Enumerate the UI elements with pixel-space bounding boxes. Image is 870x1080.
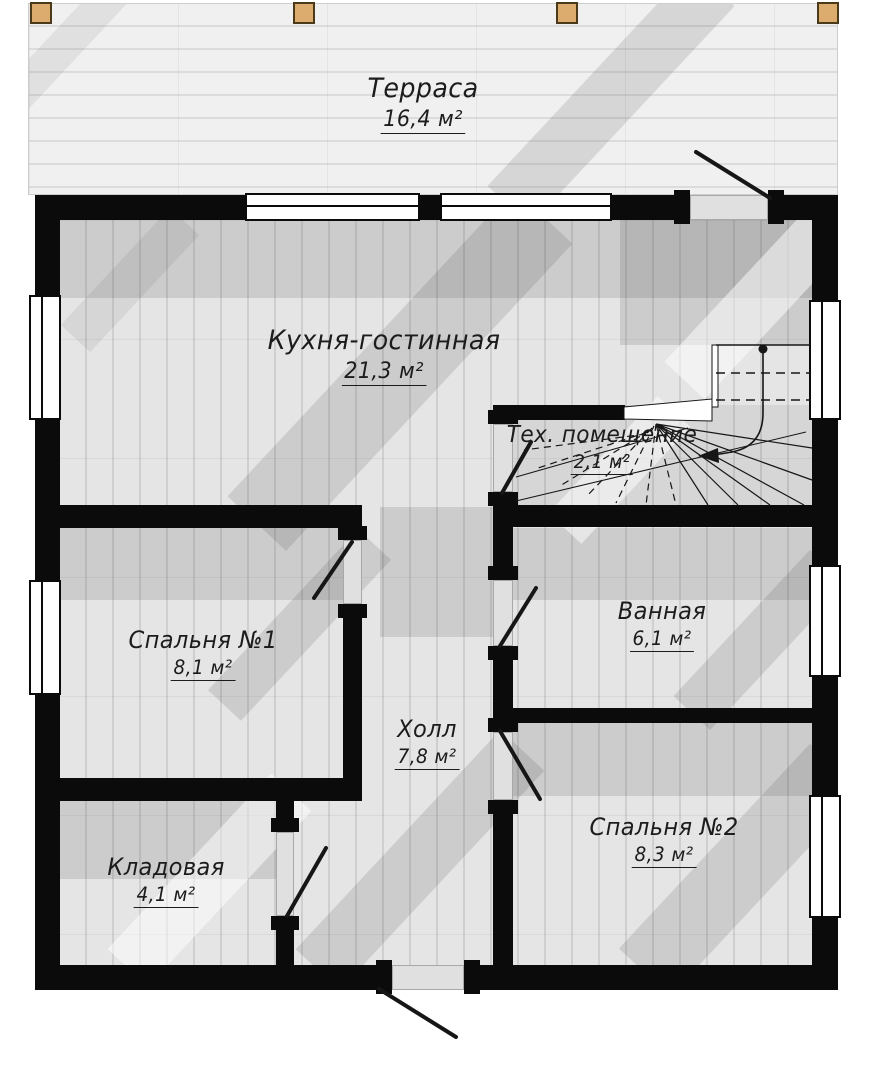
room-area: 8,1 м² [128,657,277,679]
room-label-kitchen: Кухня-гостинная 21,3 м² [268,326,501,384]
terrace-post [293,2,315,24]
room-name: Терраса [367,74,478,104]
room-label-bedroom2: Спальня №2 8,3 м² [589,814,738,866]
room-label-bedroom1: Спальня №1 8,1 м² [128,627,277,679]
shadow-band [513,528,812,600]
terrace-post [30,2,52,24]
door-jamb [488,492,518,506]
shadow-band [487,3,734,195]
door-jamb [376,960,392,994]
window-top-left [245,193,420,221]
window-bathroom [809,565,841,677]
room-label-bathroom: Ванная 6,1 м² [618,598,706,650]
door-jamb [488,566,518,580]
room-label-hall: Холл 7,8 м² [395,716,460,768]
door-opening-exit [392,965,464,990]
room-name: Кладовая [107,854,224,881]
door-opening-bedroom1 [343,540,362,604]
door-jamb [674,190,690,224]
room-label-terrace: Терраса 16,4 м² [367,74,478,132]
door-jamb [271,916,299,930]
room-area: 8,3 м² [589,844,738,866]
terrace-post [556,2,578,24]
room-area: 7,8 м² [395,746,460,768]
door-opening-bathroom [493,580,513,646]
door-jamb [271,818,299,832]
floor-plan: Терраса 16,4 м² Кухня-гостинная 21,3 м² … [0,0,870,1080]
door-swing-exit [379,989,456,1037]
room-label-storage: Кладовая 4,1 м² [107,854,224,906]
terrace-post [817,2,839,24]
window-kitchen-left [29,295,61,420]
room-area: 21,3 м² [268,359,501,384]
door-jamb [768,190,784,224]
window-top-right [440,193,612,221]
door-jamb [464,960,480,994]
room-name: Ванная [618,598,706,625]
room-name: Спальня №1 [128,627,277,654]
room-label-tech: Тех. помещение 2,1 м² [507,423,697,473]
door-jamb [338,526,367,540]
door-opening-bedroom2 [493,732,513,800]
window-stairs [809,300,841,420]
door-jamb [338,604,367,618]
door-jamb [488,800,518,814]
door-opening-entry [690,195,768,220]
wall-bathroom-bedroom2 [505,708,838,723]
door-opening-storage [276,832,294,916]
wall-bedroom1-top [60,505,362,528]
room-area: 4,1 м² [107,884,224,906]
wall-bathroom-top [505,505,838,527]
room-area: 6,1 м² [618,628,706,650]
window-bedroom1 [29,580,61,695]
room-name: Спальня №2 [589,814,738,841]
shadow-band [513,723,812,796]
wall-storage-top [60,778,362,801]
door-jamb [488,646,518,660]
room-name: Кухня-гостинная [268,326,501,356]
door-jamb [488,718,518,732]
room-name: Холл [395,716,460,743]
room-area: 2,1 м² [507,452,697,473]
window-bedroom2 [809,795,841,918]
room-area: 16,4 м² [367,107,478,132]
room-name: Тех. помещение [507,423,697,449]
